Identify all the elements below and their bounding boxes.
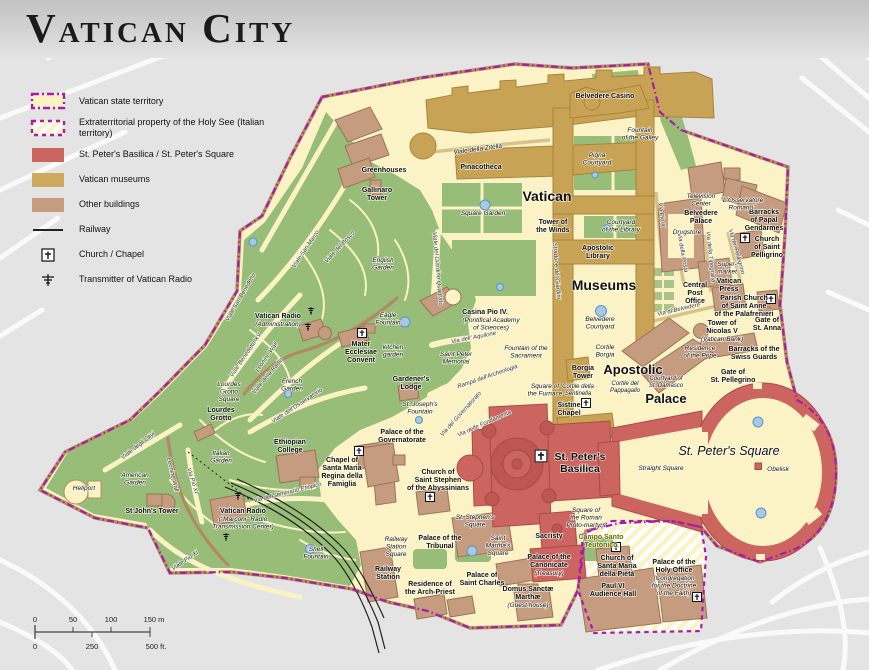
basilica-swatch — [30, 146, 66, 164]
label-campo-santo: Campo SantoTeutonico — [578, 534, 623, 549]
label-canonicate-sub: (Treasury) — [534, 570, 564, 577]
title-band: Vatican City — [0, 0, 869, 58]
label-square-garden: Square Garden — [461, 210, 506, 217]
fountain-dot — [756, 508, 766, 518]
transmitter-icon — [30, 271, 66, 289]
church-icon — [426, 493, 435, 502]
legend-label-state: Vatican state territory — [79, 96, 163, 107]
label-greenhouses: Greenhouses — [362, 167, 407, 174]
fountain-dot — [592, 172, 598, 178]
legend-row-basilica: St. Peter's Basilica / St. Peter's Squar… — [30, 146, 280, 164]
scale-ft-250: 250 — [86, 642, 99, 651]
label-casina-pio: Casina Pio IV. — [462, 309, 508, 316]
scale-m-50: 50 — [69, 615, 77, 624]
state-territory-swatch — [30, 92, 66, 110]
label-tower-nicolas-sub: (Vatican Bank) — [701, 336, 743, 343]
label-heliport: Heliport — [73, 485, 97, 492]
label-residence-pope: Residenceof the Pope — [683, 345, 717, 360]
label-holy-office-sub: (Congregationfor the Doctrineof the Fait… — [652, 575, 697, 597]
label-belvedere-casino: Belvedere Casino — [576, 93, 635, 100]
label-cortile-sentinella: Cortile dellaSentinella — [562, 384, 594, 397]
legend-label-extraterritorial: Extraterritorial property of the Holy Se… — [79, 117, 280, 139]
label-canonicate: Palace of theCanonicate — [527, 554, 570, 569]
label-american-garden: AmericanGarden — [120, 472, 149, 487]
label-gate-st-anna: Gate ofSt. Anna — [753, 317, 781, 332]
label-st-peters-square: St. Peter's Square — [678, 444, 779, 458]
fountain-dot — [416, 417, 423, 424]
label-st-peters-basilica: St. Peter'sBasilica — [555, 451, 606, 475]
scale-m-100: 100 — [105, 615, 118, 624]
label-sistine-chapel: SistineChapel — [557, 402, 580, 417]
label-vatican-press: VaticanPress — [717, 278, 742, 293]
label-palace-governatorate: Palace of theGovernatorate — [378, 429, 426, 444]
label-museums: Museums — [572, 277, 637, 293]
label-marconi-sub: ("Marconi" RadioTransmission Center) — [212, 516, 274, 531]
church-icon — [30, 246, 66, 264]
legend-row-transmitter: Transmitter of Vatican Radio — [30, 271, 280, 289]
label-courtyard-library: Courtyardof the Library — [602, 219, 641, 234]
church-icon — [358, 329, 367, 338]
casina-courtyard — [445, 289, 461, 305]
fountain-dot — [400, 317, 410, 327]
label-gendarmes: Barracksof PapalGendarmes — [745, 209, 784, 232]
church-icon — [535, 450, 547, 462]
label-obelisk: Obelisk — [767, 466, 789, 473]
scale-ft-500: 500 ft. — [146, 642, 167, 651]
label-tower-of-the-winds: Tower ofthe Winds — [536, 219, 569, 234]
label-square-furnace: Square ofthe Furnace — [528, 383, 563, 398]
label-arch-priest: Residence ofthe Arch-Priest — [405, 581, 456, 596]
railway-swatch — [30, 221, 66, 239]
label-lourdes-grotto-square: LourdesGrottoSquare — [217, 381, 241, 403]
label-cortile-pappagallo: Cortile delPappagallo — [610, 381, 641, 394]
label-st-johns-tower: St John's Tower — [125, 508, 179, 515]
label-supermarket: Super-market — [717, 261, 738, 276]
church-icon — [355, 447, 364, 456]
fountain-dot — [467, 546, 477, 556]
label-french-garden: FrenchGarden — [281, 378, 303, 393]
label-kitchen-garden: kitchengarden — [383, 344, 404, 359]
label-vatican-radio-admin: Vatican Radio — [255, 313, 301, 320]
legend-label-railway: Railway — [79, 224, 111, 235]
page-title: Vatican City — [26, 4, 869, 52]
vatican-city-map-page: VaticanMuseumsApostolicPalaceSt. Peter's… — [0, 0, 869, 670]
label-english-garden: EnglishGarden — [372, 257, 394, 272]
label-belvedere-courtyard: BelvedereCourtyard — [585, 316, 615, 331]
church-icon — [693, 593, 702, 602]
label-apostolic: Apostolic — [603, 362, 662, 377]
legend-label-other: Other buildings — [79, 199, 140, 210]
legend-row-state: Vatican state territory — [30, 92, 280, 110]
museums-swatch — [30, 171, 66, 189]
label-pinacotheca: Pinacotheca — [460, 164, 501, 171]
label-vatican: Vatican — [522, 188, 571, 204]
label-italian-garden: ItalianGarden — [210, 450, 232, 465]
fountain-dot — [480, 200, 490, 210]
other-buildings-swatch — [30, 196, 66, 214]
scale-m-0: 0 — [33, 615, 37, 624]
obelisk-marker — [755, 463, 762, 470]
label-fountain-sacrament: Fountain of theSacrament — [504, 345, 548, 360]
label-swiss-guards: Barracks of theSwiss Guards — [729, 346, 780, 361]
label-tower-nicolas: Tower ofNicolas V — [706, 320, 738, 335]
legend-row-other: Other buildings — [30, 196, 280, 214]
label-lourdes-grotto: LourdesGrotto — [207, 407, 235, 422]
label-railway-station-square: RailwayStationSquare — [385, 536, 409, 558]
legend-row-church: Church / Chapel — [30, 246, 280, 264]
label-cortile-borgia: CortileBorgia — [596, 344, 615, 359]
label-saint-peter-memorial: Saint PeterMemorial — [440, 351, 473, 366]
label-railway-station: RailwayStation — [375, 566, 401, 581]
label-palace: Palace — [645, 391, 686, 406]
legend-row-extraterritorial: Extraterritorial property of the Holy Se… — [30, 117, 280, 139]
label-church-pelligrino: Churchof SaintPelligrino — [751, 236, 783, 259]
fountain-dot — [497, 284, 504, 291]
label-straight-square: Straight Square — [638, 465, 684, 472]
label-parish-st-anne: Parish Churchof Saint Anneof the Palafre… — [714, 295, 773, 318]
church-icon — [741, 234, 750, 243]
label-church-pieta: Church ofSanta Mariadella Pietà — [597, 555, 636, 578]
legend-row-railway: Railway — [30, 221, 280, 239]
legend-label-church: Church / Chapel — [79, 249, 144, 260]
legend-label-basilica: St. Peter's Basilica / St. Peter's Squar… — [79, 149, 234, 160]
label-courtyard-damasco: Courtyard ofSt. Damasco — [649, 376, 684, 389]
label-vatican-radio-admin-sub: (Administration) — [255, 321, 301, 328]
legend-row-museums: Vatican museums — [30, 171, 280, 189]
label-holy-office: Palace of theHoly Office — [652, 559, 695, 574]
label-domus-sub: (Guest house) — [507, 602, 548, 609]
fountain-dot — [753, 417, 763, 427]
label-marconi: Vatican Radio — [220, 508, 266, 515]
label-apostolic-library: ApostolicLibrary — [582, 245, 614, 260]
scale-bar: 0 50 100 150 m 0 250 500 ft. — [14, 610, 214, 665]
fountain-dot — [596, 306, 607, 317]
legend: Vatican state territory Extraterritorial… — [30, 92, 280, 296]
church-icon — [582, 399, 591, 408]
label-sacristy: Sacristy — [535, 533, 562, 540]
label-ethiopian-college: EthiopianCollege — [274, 439, 306, 454]
scale-m-150: 150 m — [144, 615, 165, 624]
legend-label-museums: Vatican museums — [79, 174, 150, 185]
scale-ft-0: 0 — [33, 642, 37, 651]
extraterritorial-swatch — [30, 119, 66, 137]
legend-label-transmitter: Transmitter of Vatican Radio — [79, 274, 192, 285]
label-borgia-tower: BorgiaTower — [572, 365, 594, 380]
